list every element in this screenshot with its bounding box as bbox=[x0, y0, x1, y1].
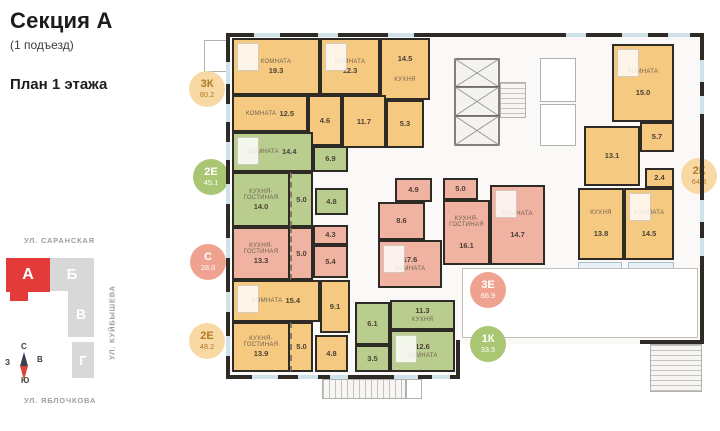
window bbox=[252, 375, 278, 379]
room-area: 3.5 bbox=[367, 355, 377, 363]
window bbox=[394, 375, 418, 379]
room-2К-14.5: комната14.5 bbox=[624, 188, 674, 260]
window bbox=[700, 96, 704, 114]
room-label: кухня-гостиная bbox=[445, 216, 488, 228]
window bbox=[226, 142, 230, 160]
outside-landing-bottom bbox=[406, 379, 422, 399]
room-area: 4.6 bbox=[320, 117, 330, 125]
window bbox=[432, 375, 450, 379]
window bbox=[318, 33, 338, 37]
room-area: 15.4 bbox=[285, 297, 300, 305]
map-block-g: Г bbox=[72, 342, 94, 378]
street-label-saranskaya: УЛ. САРАНСКАЯ bbox=[24, 236, 95, 245]
window bbox=[226, 292, 230, 312]
room-2Е-4.8: 4.8 bbox=[315, 335, 348, 372]
room-2Е-4.8: 4.8 bbox=[315, 188, 348, 215]
room-label: кухня bbox=[590, 210, 612, 216]
room-2Е-9.1: 9.1 bbox=[320, 280, 350, 333]
room-3Е-8.6: 8.6 bbox=[378, 202, 425, 240]
room-area: 5.4 bbox=[325, 258, 335, 266]
apartment-code: 2Е bbox=[200, 331, 213, 342]
apartment-type-badge-2: С28.0 bbox=[190, 244, 226, 280]
apartment-total-area: 64.5 bbox=[692, 178, 707, 186]
window bbox=[226, 184, 230, 204]
room-С-4.3: 4.3 bbox=[313, 225, 348, 245]
room-label: комната bbox=[261, 59, 292, 65]
apartment-type-badge-0: 3К80.2 bbox=[189, 71, 225, 107]
room-2К-15.0: комната15.0 bbox=[612, 44, 674, 122]
room-3Е-14.7: комната14.7 bbox=[490, 185, 545, 265]
room-area: 19.3 bbox=[269, 67, 284, 75]
room-2К-5.7: 5.7 bbox=[640, 122, 674, 152]
room-area: 14.5 bbox=[398, 55, 413, 63]
room-2К-13.1: 13.1 bbox=[584, 126, 640, 186]
furniture bbox=[617, 49, 639, 77]
room-3К-12.5: комната12.5 bbox=[232, 95, 308, 132]
page-title: Секция А bbox=[10, 8, 113, 34]
room-1К-6.1: 6.1 bbox=[355, 302, 390, 345]
apartment-total-area: 66.9 bbox=[481, 292, 496, 300]
room-label: комната bbox=[246, 111, 277, 117]
window bbox=[226, 336, 230, 356]
room-label: кухня bbox=[412, 317, 434, 323]
room-2Е-6.9: 6.9 bbox=[313, 146, 348, 172]
window bbox=[330, 375, 348, 379]
room-label: кухня-гостиная bbox=[234, 336, 288, 348]
apartment-total-area: 45.1 bbox=[204, 179, 219, 187]
room-label: кухня-гостиная bbox=[234, 189, 288, 201]
apartment-code: 3Е bbox=[481, 280, 494, 291]
window bbox=[566, 33, 586, 37]
room-3Е-17.6: 17.6комната bbox=[378, 240, 442, 288]
room-area: 13.8 bbox=[594, 230, 609, 238]
apartment-code: 3К bbox=[201, 79, 214, 90]
room-3К-19.3: комната19.3 bbox=[232, 38, 320, 95]
entrance-subtitle: (1 подъезд) bbox=[10, 38, 74, 52]
floor-plan-page: Секция А (1 подъезд) План 1 этажа УЛ. СА… bbox=[0, 0, 720, 431]
furniture bbox=[629, 193, 651, 221]
room-area: 14.0 bbox=[254, 203, 269, 211]
room-area: 5.0 bbox=[296, 196, 306, 204]
furniture bbox=[325, 43, 347, 71]
wall-1k-wing-right bbox=[456, 340, 460, 379]
street-label-yablochkova: УЛ. ЯБЛОЧКОВА bbox=[24, 396, 96, 405]
window bbox=[700, 60, 704, 82]
window bbox=[254, 33, 280, 37]
utility-room bbox=[540, 58, 576, 102]
furniture bbox=[237, 43, 259, 71]
room-area: 6.1 bbox=[367, 320, 377, 328]
map-block-v: В bbox=[68, 291, 94, 337]
room-2Е-15.4: комната15.4 bbox=[232, 280, 320, 322]
room-area: 15.0 bbox=[636, 89, 651, 97]
room-3К-5.3: 5.3 bbox=[386, 100, 424, 148]
apartment-code: С bbox=[204, 252, 212, 263]
apartment-code: 2Е bbox=[204, 167, 217, 178]
map-block-b: Б bbox=[50, 258, 94, 291]
room-2Е-5.0: 5.0 bbox=[290, 322, 313, 372]
map-block-a-tab bbox=[10, 292, 28, 301]
room-area: 12.5 bbox=[279, 110, 294, 118]
room-area: 4.8 bbox=[326, 350, 336, 358]
room-3Е-5.0: 5.0 bbox=[443, 178, 478, 200]
room-1К-12.6: 12.6комната bbox=[390, 330, 455, 372]
room-2Е-13.9: кухня-гостиная13.9 bbox=[232, 322, 290, 372]
apartment-type-badge-5: 1К33.5 bbox=[470, 326, 506, 362]
room-area: 14.4 bbox=[282, 148, 297, 156]
compass-needle-north bbox=[20, 352, 28, 366]
apartment-type-badge-6: 2К64.5 bbox=[681, 158, 717, 194]
room-С-5.4: 5.4 bbox=[313, 245, 348, 278]
room-label: кухня-гостиная bbox=[234, 243, 288, 255]
window bbox=[298, 375, 318, 379]
apartment-type-badge-1: 2Е45.1 bbox=[193, 159, 229, 195]
room-3К-11.7: 11.7 bbox=[342, 95, 386, 148]
room-area: 5.0 bbox=[296, 250, 306, 258]
compass-north-label: С bbox=[21, 342, 27, 351]
furniture bbox=[237, 285, 259, 313]
room-2К-2.4: 2.4 bbox=[645, 168, 674, 188]
room-С-13.3: кухня-гостиная13.3 bbox=[232, 227, 290, 280]
apartment-total-area: 80.2 bbox=[200, 91, 215, 99]
window bbox=[700, 200, 704, 222]
room-area: 12.6 bbox=[415, 343, 430, 351]
compass-needle-south bbox=[20, 366, 28, 380]
room-area: 14.7 bbox=[510, 231, 525, 239]
apartment-total-area: 48.2 bbox=[200, 343, 215, 351]
street-label-kuybysheva: УЛ. КУЙБЫШЕВА bbox=[108, 263, 117, 383]
compass-east-label: В bbox=[37, 355, 43, 364]
room-2Е-14.0: кухня-гостиная14.0 bbox=[232, 172, 290, 227]
room-area: 11.7 bbox=[357, 118, 371, 126]
staircase bbox=[500, 82, 526, 118]
room-3К-12.3: комната12.3 bbox=[320, 38, 380, 95]
room-2К-13.8: кухня13.8 bbox=[578, 188, 624, 260]
room-area: 8.6 bbox=[396, 217, 406, 225]
apartment-total-area: 33.5 bbox=[481, 346, 496, 354]
entrance-stairs-bottom-right bbox=[650, 344, 702, 392]
window bbox=[226, 238, 230, 258]
furniture bbox=[495, 190, 517, 218]
room-3К-4.6: 4.6 bbox=[308, 95, 342, 146]
window bbox=[622, 33, 648, 37]
utility-room bbox=[540, 104, 576, 146]
window bbox=[700, 238, 704, 256]
map-block-a: А bbox=[6, 258, 50, 292]
floor-title: План 1 этажа bbox=[10, 76, 107, 93]
room-area: 14.5 bbox=[642, 230, 657, 238]
window bbox=[226, 104, 230, 122]
room-area: 5.0 bbox=[455, 185, 465, 193]
room-area: 6.9 bbox=[325, 155, 335, 163]
room-area: 4.8 bbox=[326, 198, 336, 206]
room-area: 9.1 bbox=[330, 303, 340, 311]
room-3К-14.5: 14.5кухня bbox=[380, 38, 430, 100]
apartment-type-badge-4: 3Е66.9 bbox=[470, 272, 506, 308]
compass-west-label: З bbox=[5, 358, 10, 367]
outside-stairs-bottom bbox=[322, 379, 406, 399]
apartment-type-badge-3: 2Е48.2 bbox=[189, 323, 225, 359]
room-area: 13.3 bbox=[254, 257, 269, 265]
window bbox=[226, 62, 230, 84]
room-area: 13.9 bbox=[254, 350, 269, 358]
room-area: 11.3 bbox=[415, 307, 429, 315]
window bbox=[388, 33, 414, 37]
room-area: 16.1 bbox=[459, 242, 474, 250]
room-area: 4.9 bbox=[408, 186, 418, 194]
apartment-code: 1К bbox=[482, 334, 495, 345]
room-2Е-5.0: 5.0 bbox=[290, 172, 313, 227]
room-2Е-14.4: комната14.4 bbox=[232, 132, 313, 172]
elevator-shafts bbox=[454, 58, 500, 146]
room-3Е-16.1: кухня-гостиная16.1 bbox=[443, 200, 490, 265]
room-area: 5.0 bbox=[296, 343, 306, 351]
furniture bbox=[237, 137, 259, 165]
wall-bottom-right bbox=[640, 340, 704, 344]
room-area: 5.3 bbox=[400, 120, 410, 128]
furniture bbox=[395, 335, 417, 363]
furniture bbox=[383, 245, 405, 273]
room-3Е-4.9: 4.9 bbox=[395, 178, 432, 202]
room-1К-3.5: 3.5 bbox=[355, 345, 390, 372]
room-С-5.0: 5.0 bbox=[290, 227, 313, 280]
room-label: кухня bbox=[394, 77, 416, 83]
wall-left bbox=[226, 33, 230, 379]
room-area: 5.7 bbox=[652, 133, 662, 141]
room-area: 4.3 bbox=[325, 231, 335, 239]
room-1К-11.3: 11.3кухня bbox=[390, 300, 455, 330]
apartment-total-area: 28.0 bbox=[201, 264, 216, 272]
window bbox=[668, 33, 690, 37]
room-area: 13.1 bbox=[605, 152, 620, 160]
room-area: 2.4 bbox=[654, 174, 664, 182]
